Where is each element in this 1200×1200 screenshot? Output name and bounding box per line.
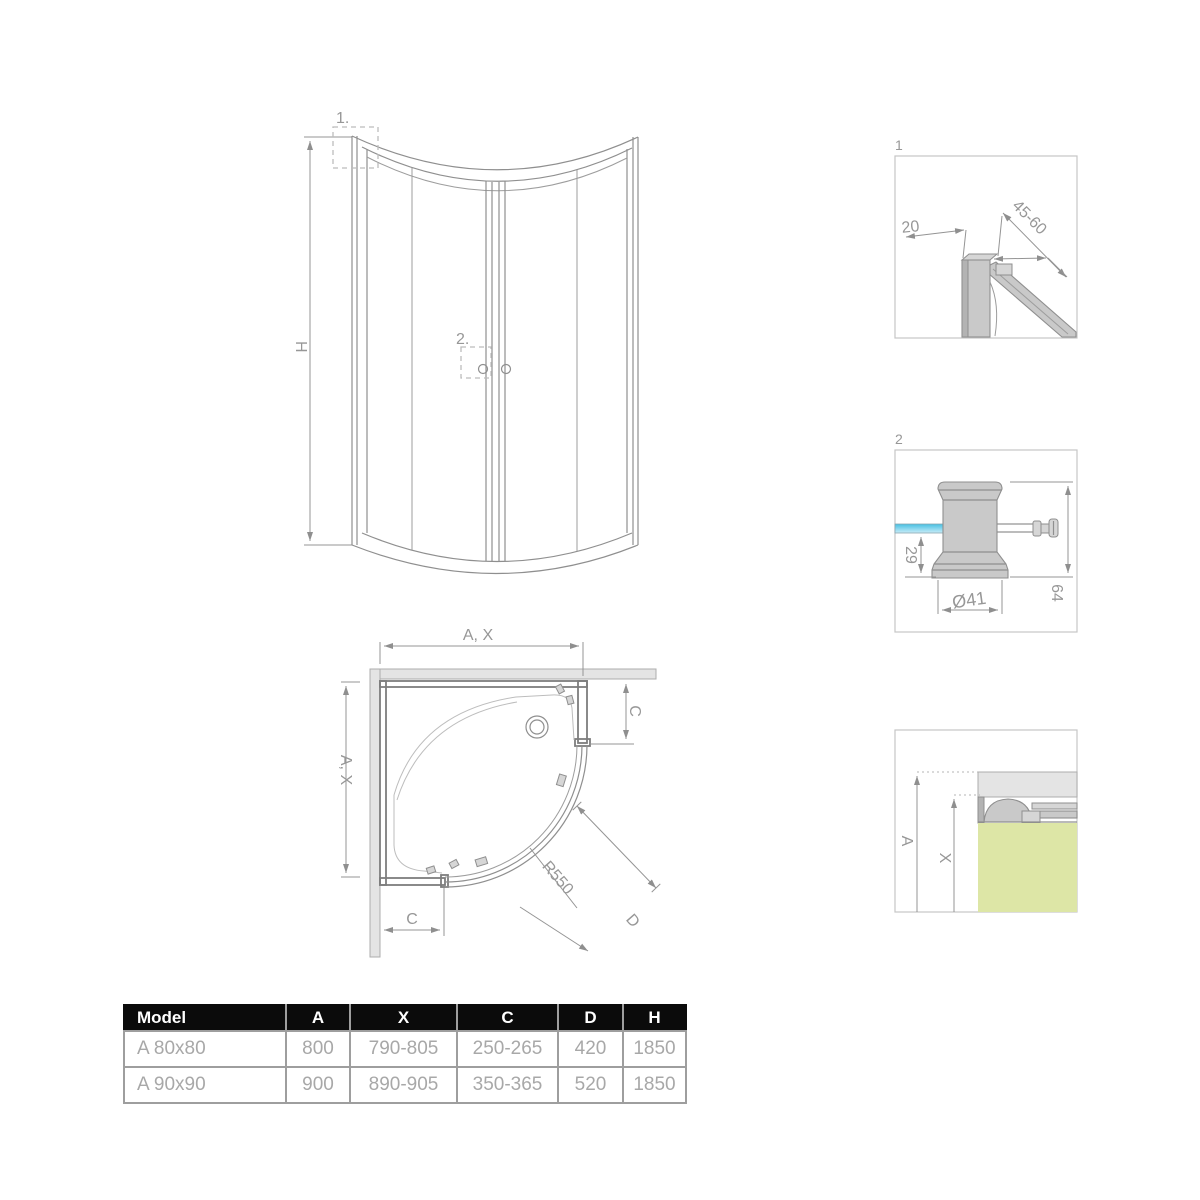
front-elevation-drawing: H 1. 2. — [292, 110, 638, 574]
dim-label-20: 20 — [901, 218, 921, 237]
dim-label-ax-left: A, X — [337, 755, 354, 786]
cell-h: 1850 — [623, 1067, 686, 1103]
detail-2-fixing-rod — [993, 524, 1035, 532]
detail-1-number: 1 — [895, 137, 903, 153]
cell-h: 1850 — [623, 1031, 686, 1067]
cell-model: A 80x80 — [124, 1031, 286, 1067]
cell-d: 420 — [558, 1031, 623, 1067]
detail-1-wall-profile: 1 20 45-60 — [895, 137, 1077, 338]
cell-c: 350-365 — [457, 1067, 558, 1103]
table-row: A 80x80 800 790-805 250-265 420 1850 — [124, 1031, 686, 1067]
plan-d-dimension-line — [577, 806, 656, 888]
detail-2-screw-shaft — [1041, 524, 1049, 533]
plan-front-arc-inner — [445, 745, 582, 882]
cell-d: 520 — [558, 1067, 623, 1103]
right-door-knob — [502, 365, 511, 374]
detail-3-wall-band — [978, 772, 1077, 797]
cell-a: 800 — [286, 1031, 350, 1067]
bottom-rail-inner-curve — [362, 533, 632, 562]
detail-3-profile-sliver — [978, 797, 984, 823]
plan-clamp-bottom-left-2 — [449, 859, 459, 868]
col-header-h: H — [623, 1005, 686, 1031]
dim-label-c-bottom: C — [406, 911, 418, 928]
dim-label-a: A — [898, 836, 915, 847]
plan-clamp-bottom-left-1 — [426, 866, 435, 874]
dim-label-c-right: C — [626, 705, 643, 717]
callout-1-box — [333, 127, 378, 168]
dim-label-r550: R550 — [538, 858, 576, 898]
detail-1-clamp-piece — [996, 264, 1012, 275]
col-header-a: A — [286, 1005, 350, 1031]
table-header-row: Model A X C D H — [124, 1005, 686, 1031]
plan-frame-bottom-bar — [380, 878, 445, 885]
dim-label-64: 64 — [1048, 584, 1065, 602]
plan-clamp-top-right-2 — [566, 695, 574, 704]
dim-label-29: 29 — [902, 546, 919, 564]
dim-label-h: H — [292, 341, 309, 353]
plan-view-drawing: A, X A, X C — [337, 627, 660, 957]
cell-model: A 90x90 — [124, 1067, 286, 1103]
dim-label-x: X — [936, 853, 953, 864]
bottom-rail-outer-curve — [352, 545, 638, 574]
plan-door-glass-arc — [445, 745, 577, 877]
plan-frame-right-bar — [578, 681, 587, 743]
cell-x: 790-805 — [350, 1031, 457, 1067]
drain-circle-inner — [530, 720, 544, 734]
tray-rim-line-3 — [394, 795, 442, 873]
detail-1-profile-top-face — [962, 254, 997, 260]
detail-3-profile-step — [1022, 811, 1040, 823]
detail-3-glass-edge-top — [1032, 803, 1077, 809]
cell-a: 900 — [286, 1067, 350, 1103]
detail-2-screw-plate — [1033, 521, 1041, 536]
plan-frame-left-bar — [380, 681, 386, 885]
cell-x: 890-905 — [350, 1067, 457, 1103]
top-rail-outer-curve — [352, 136, 638, 170]
dim-label-ax-top: A, X — [463, 627, 494, 644]
plan-d-extension-line — [520, 907, 588, 951]
detail-2-number: 2 — [895, 431, 903, 447]
table-row: A 90x90 900 890-905 350-365 520 1850 — [124, 1067, 686, 1103]
plan-front-arc-outer — [445, 745, 587, 887]
dimensions-table: Model A X C D H A 80x80 800 790-805 250-… — [123, 1004, 687, 1104]
detail-2-knob: 2 29 Ø41 64 — [895, 431, 1077, 632]
callout-2-label: 2. — [456, 331, 469, 348]
plan-door-handle-right — [556, 774, 566, 787]
drain-circle-outer — [526, 716, 548, 738]
detail-3-tray-section: A X — [895, 730, 1077, 912]
col-header-model: Model — [124, 1005, 286, 1031]
plan-clamp-top-right-1 — [555, 684, 564, 694]
top-rail-glazing-curve — [367, 157, 627, 191]
col-header-x: X — [350, 1005, 457, 1031]
top-rail-inner-curve — [362, 147, 632, 181]
plan-top-wall — [370, 669, 656, 679]
plan-door-handle-bottom — [475, 857, 488, 867]
dim-label-d: D — [622, 911, 642, 931]
cell-c: 250-265 — [457, 1031, 558, 1067]
col-header-d: D — [558, 1005, 623, 1031]
plan-left-wall — [370, 669, 380, 957]
detail-1-profile-bar-edge — [962, 260, 968, 337]
callout-1-label: 1. — [336, 110, 349, 127]
technical-drawing-page: H 1. 2. — [0, 0, 1200, 1200]
detail-3-shower-tray — [978, 823, 1077, 912]
detail-2-glass-panel — [895, 524, 947, 533]
col-header-c: C — [457, 1005, 558, 1031]
